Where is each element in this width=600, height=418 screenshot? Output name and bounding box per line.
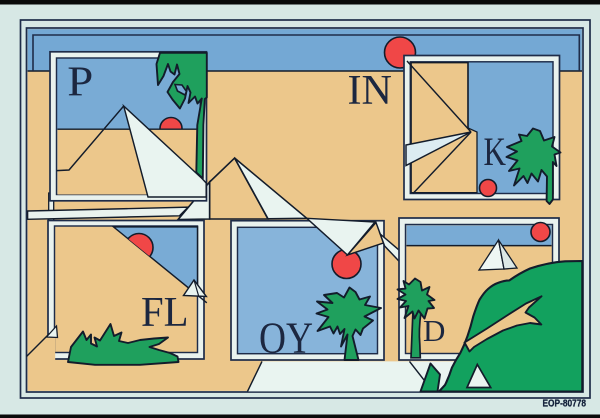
svg-text:IN: IN (348, 68, 393, 114)
svg-text:FL: FL (141, 290, 189, 336)
svg-text:EOP-80778: EOP-80778 (543, 398, 587, 410)
svg-text:OY: OY (259, 314, 313, 363)
svg-text:P: P (67, 60, 93, 106)
svg-text:D: D (423, 313, 445, 348)
svg-text:K: K (484, 129, 507, 174)
